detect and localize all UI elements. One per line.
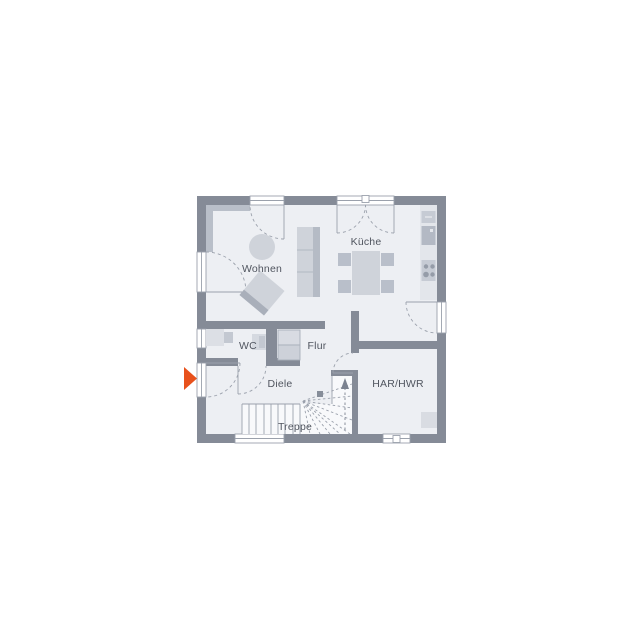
- window-wohnen-left: [197, 252, 206, 292]
- stairs-newel-post: [317, 391, 323, 397]
- room-label-wc: WC: [239, 340, 257, 352]
- wall-strip-left: [206, 205, 213, 252]
- wall-kueche-har: [351, 341, 437, 349]
- floor-plan: Wohnen Küche WC Flur Diele Treppe HAR/HW…: [0, 0, 636, 636]
- wall-stairs-har: [352, 373, 358, 434]
- room-label-diele: Diele: [268, 378, 293, 390]
- chair: [381, 280, 394, 293]
- window-wohnen-top: [250, 196, 284, 205]
- room-label-kueche: Küche: [351, 236, 382, 248]
- wardrobe: [278, 330, 300, 360]
- round-side-table: [249, 234, 275, 260]
- room-label-wohnen: Wohnen: [242, 263, 282, 275]
- chair: [338, 253, 351, 266]
- wall-wc-bottom: [206, 358, 238, 366]
- window-har-hwr: [383, 434, 410, 443]
- wall-exterior-top: [197, 196, 446, 205]
- utility-appliance: [421, 412, 437, 428]
- window-terrace-door: [437, 302, 446, 333]
- wall-exterior-left: [197, 196, 206, 443]
- room-label-treppe: Treppe: [278, 421, 312, 433]
- window-wc: [197, 329, 206, 348]
- oven: [422, 226, 436, 245]
- room-label-har-hwr: HAR/HWR: [372, 378, 424, 390]
- microwave: [422, 211, 436, 223]
- room-label-flur: Flur: [308, 340, 327, 352]
- wall-wohnen-flur: [206, 321, 325, 329]
- wall-har-jamb: [351, 349, 359, 353]
- window-entrance-door: [197, 363, 206, 397]
- chair: [338, 280, 351, 293]
- window-stairs: [235, 434, 284, 443]
- sofa: [297, 227, 320, 297]
- cooktop: [422, 260, 436, 281]
- window-kueche-double-door: [337, 196, 394, 206]
- chair: [381, 253, 394, 266]
- floor-plan-page: Wohnen Küche WC Flur Diele Treppe HAR/HW…: [0, 0, 636, 636]
- wall-strip-top: [206, 205, 250, 211]
- dining-table: [352, 251, 380, 295]
